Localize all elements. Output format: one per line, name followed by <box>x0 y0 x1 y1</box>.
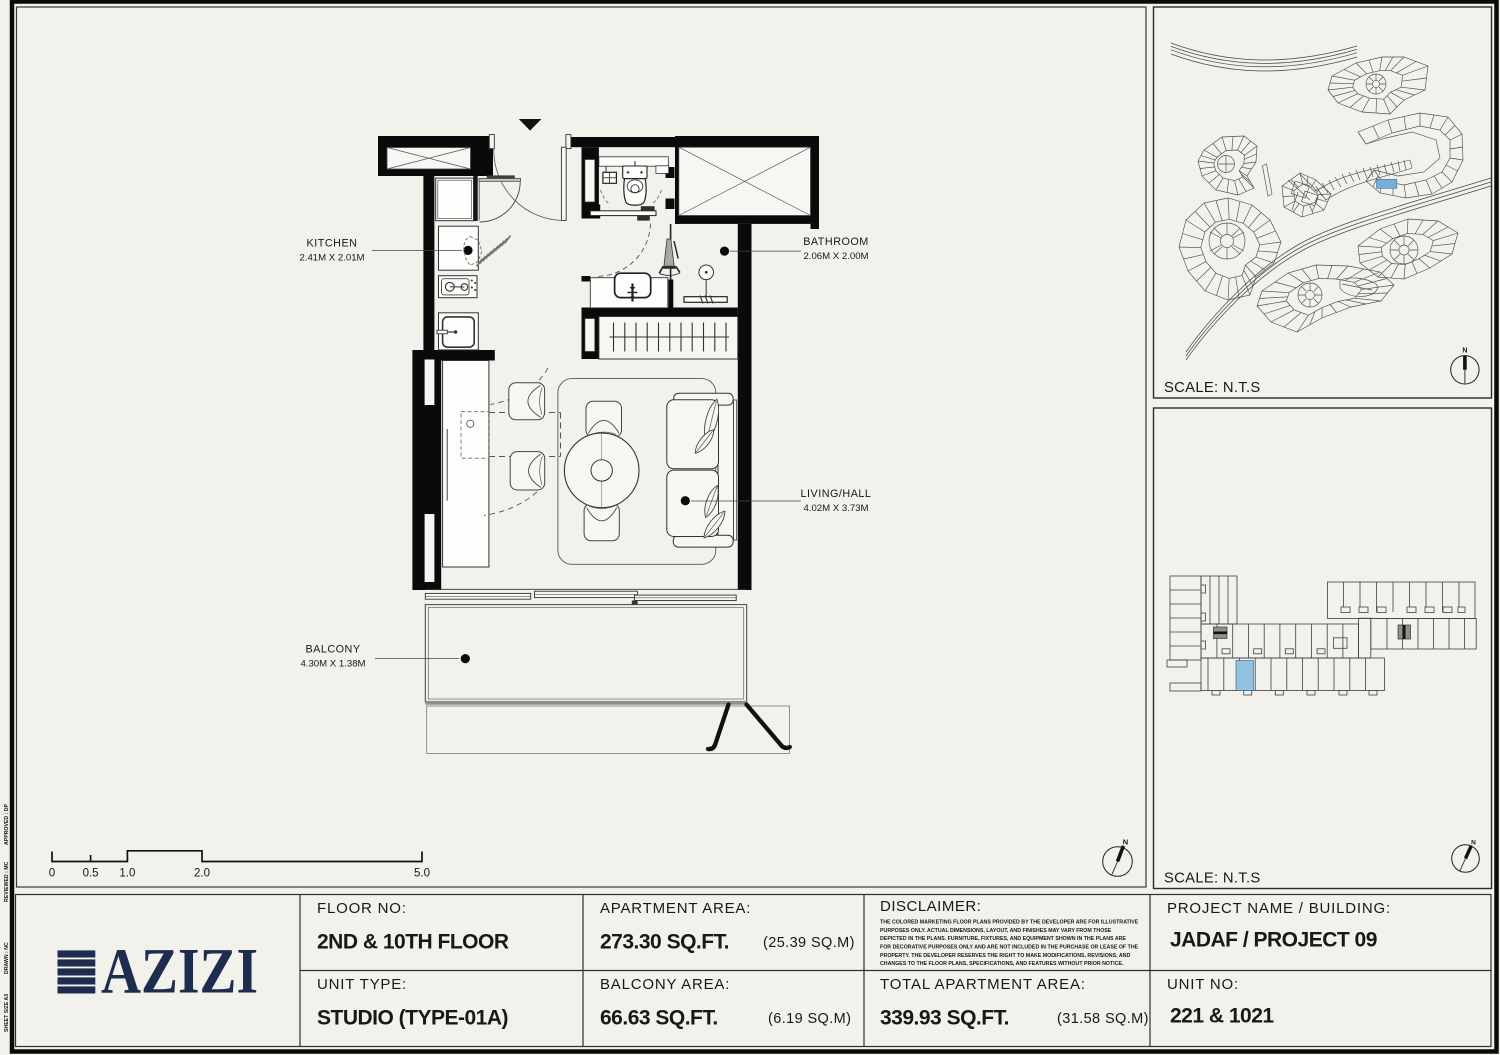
svg-text:AZIZI: AZIZI <box>101 936 258 1008</box>
svg-text:SCALE: N.T.S: SCALE: N.T.S <box>1164 380 1261 396</box>
svg-text:4.02M X 3.73M: 4.02M X 3.73M <box>803 503 868 514</box>
svg-text:SCALE: N.T.S: SCALE: N.T.S <box>1164 871 1261 887</box>
svg-text:0.5: 0.5 <box>83 868 99 880</box>
svg-text:4.30M X 1.38M: 4.30M X 1.38M <box>300 659 365 670</box>
svg-text:FOR DECORATIVE PURPOSES ONLY A: FOR DECORATIVE PURPOSES ONLY AND ARE NOT… <box>880 944 1139 950</box>
svg-text:(6.19 SQ.M): (6.19 SQ.M) <box>768 1011 851 1027</box>
svg-text:APARTMENT AREA:: APARTMENT AREA: <box>600 900 751 917</box>
svg-text:N: N <box>1462 348 1467 355</box>
svg-text:CHANGES TO THE FLOOR PLANS, SP: CHANGES TO THE FLOOR PLANS, SPECIFICATIO… <box>880 961 1124 967</box>
svg-text:SHEET SIZE A3: SHEET SIZE A3 <box>4 994 10 1032</box>
svg-text:(25.39 SQ.M): (25.39 SQ.M) <box>763 935 855 951</box>
svg-text:N: N <box>1471 840 1476 847</box>
svg-text:PROPERTY. THE DEVELOPER RESERV: PROPERTY. THE DEVELOPER RESERVES THE RIG… <box>880 953 1130 959</box>
svg-text:2ND & 10TH FLOOR: 2ND & 10TH FLOOR <box>317 931 509 954</box>
svg-text:2.06M X 2.00M: 2.06M X 2.00M <box>803 251 868 262</box>
svg-text:N: N <box>1123 838 1128 847</box>
svg-text:REVIEWED : MC: REVIEWED : MC <box>4 861 10 902</box>
svg-text:APPROVED : DP: APPROVED : DP <box>4 804 10 845</box>
svg-text:LIVING/HALL: LIVING/HALL <box>801 488 872 500</box>
svg-text:273.30 SQ.FT.: 273.30 SQ.FT. <box>600 931 729 954</box>
svg-text:BALCONY: BALCONY <box>305 644 360 656</box>
svg-text:DEPICTED IN THE PLANS. FURNITU: DEPICTED IN THE PLANS. FURNITURE, FIXTUR… <box>880 936 1126 942</box>
svg-text:DRAWN : NC: DRAWN : NC <box>4 942 10 974</box>
svg-text:KITCHEN: KITCHEN <box>307 238 358 250</box>
svg-text:2.41M X 2.01M: 2.41M X 2.01M <box>299 253 364 264</box>
svg-text:STUDIO (TYPE-01A): STUDIO (TYPE-01A) <box>317 1007 508 1030</box>
svg-text:0: 0 <box>49 868 55 880</box>
svg-text:(31.58 SQ.M): (31.58 SQ.M) <box>1057 1011 1149 1027</box>
svg-text:FLOOR NO:: FLOOR NO: <box>317 900 407 917</box>
svg-text:66.63 SQ.FT.: 66.63 SQ.FT. <box>600 1007 718 1030</box>
svg-text:JADAF / PROJECT 09: JADAF / PROJECT 09 <box>1170 929 1377 952</box>
svg-text:2.0: 2.0 <box>194 868 210 880</box>
svg-text:THE COLORED MARKETING FLOOR PL: THE COLORED MARKETING FLOOR PLANS PROVID… <box>880 920 1139 926</box>
svg-text:PURPOSES ONLY. ACTUAL DIMENSIO: PURPOSES ONLY. ACTUAL DIMENSIONS, LAYOUT… <box>880 928 1112 934</box>
svg-text:PROJECT NAME / BUILDING:: PROJECT NAME / BUILDING: <box>1167 900 1391 917</box>
svg-text:221 & 1021: 221 & 1021 <box>1170 1005 1274 1028</box>
svg-text:TOTAL APARTMENT AREA:: TOTAL APARTMENT AREA: <box>880 976 1086 993</box>
svg-text:5.0: 5.0 <box>414 868 430 880</box>
svg-text:BALCONY AREA:: BALCONY AREA: <box>600 976 730 993</box>
svg-text:UNIT TYPE:: UNIT TYPE: <box>317 976 407 993</box>
svg-text:UNIT NO:: UNIT NO: <box>1167 976 1239 993</box>
svg-text:1.0: 1.0 <box>119 868 135 880</box>
svg-text:DISCLAIMER:: DISCLAIMER: <box>880 898 981 915</box>
svg-text:BATHROOM: BATHROOM <box>803 236 869 248</box>
svg-text:339.93 SQ.FT.: 339.93 SQ.FT. <box>880 1007 1009 1030</box>
